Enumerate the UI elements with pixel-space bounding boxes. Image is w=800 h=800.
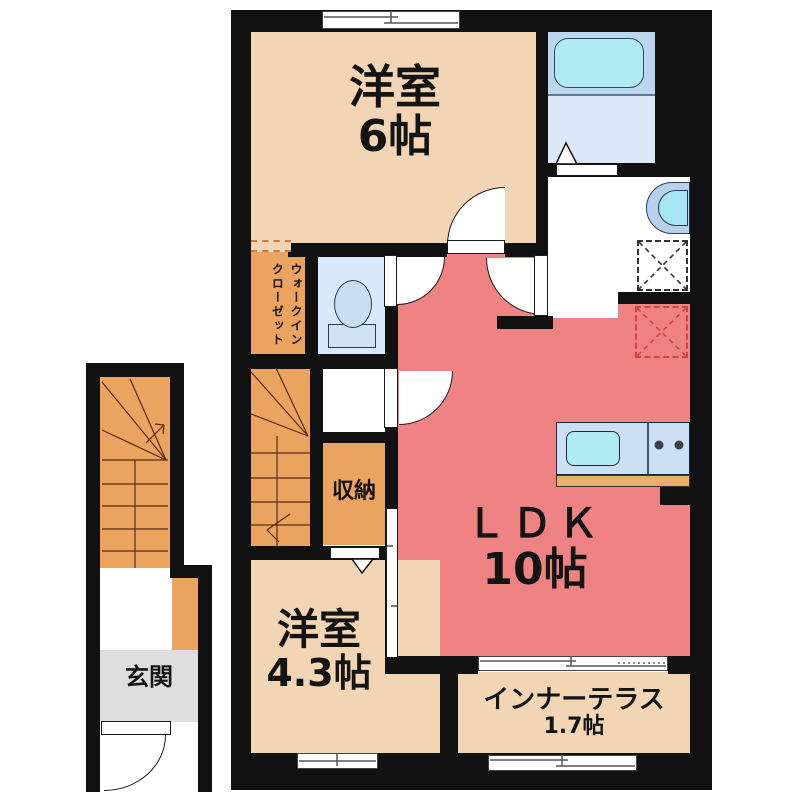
label-inner-terrace: インナーテラス 1.7帖 (458, 686, 690, 739)
door-leaf-toilet (384, 255, 397, 307)
door-leaf-bedroom6 (447, 240, 505, 254)
kitchen-counter-front (556, 475, 690, 487)
stairs-internal (249, 367, 310, 546)
storage-name: 収納 (332, 479, 376, 504)
label-ldk: ＬＤＫ 10帖 (420, 502, 650, 594)
floor-plan: 洋室 6帖 ＬＤＫ 10帖 洋室 4.3帖 インナーテラス 1.7帖 収納 玄関… (0, 0, 800, 800)
entrance-name: 玄関 (125, 663, 173, 691)
washroom-entry (548, 292, 618, 318)
window-bedroom6-top (322, 11, 460, 29)
door-leaf-entrance (101, 721, 171, 735)
bedroom6-name: 洋室 (290, 62, 500, 113)
window-bedroom43-bottom (297, 753, 378, 769)
wic-passage (251, 240, 291, 252)
window-terrace-bottom (488, 755, 637, 771)
bedroom43-size: 4.3帖 (244, 653, 394, 695)
kitchen-sink-icon (566, 431, 620, 466)
bedroom6-size: 6帖 (290, 113, 500, 161)
door-bath-strip (556, 164, 618, 176)
room-bath-floor (548, 95, 655, 163)
shoe-cabinet (172, 578, 198, 650)
label-walk-in-closet: ウォークイン クローゼット (253, 257, 305, 353)
bedroom43-name: 洋室 (244, 607, 394, 653)
label-bedroom43: 洋室 4.3帖 (244, 607, 394, 695)
wash-basin-bowl-icon (658, 190, 688, 226)
terrace-size: 1.7帖 (458, 715, 690, 739)
toilet-bowl-icon (334, 280, 372, 328)
wall-top (231, 10, 712, 32)
ldk-size: 10帖 (420, 546, 650, 594)
bathtub-icon (554, 38, 644, 88)
ldk-name: ＬＤＫ (420, 502, 650, 546)
wic-name-col2: クローゼット (270, 263, 284, 347)
label-storage: 収納 (323, 480, 385, 504)
wall-right (690, 10, 712, 790)
refrigerator-space (635, 306, 688, 358)
door-arc-entrance (104, 735, 166, 791)
label-bedroom6: 洋室 6帖 (290, 62, 500, 161)
wic-name-col1: ウォークイン (289, 263, 303, 347)
door-leaf-washroom (534, 255, 548, 316)
window-ldk-terrace (478, 656, 668, 671)
hall-landing (323, 370, 385, 432)
door-leaf-hall-ldk (384, 368, 398, 428)
washing-machine-space (637, 240, 688, 291)
stairs-external (100, 377, 170, 568)
label-entrance: 玄関 (100, 664, 198, 690)
door-storage-strip (330, 547, 380, 559)
terrace-name: インナーテラス (458, 686, 690, 715)
